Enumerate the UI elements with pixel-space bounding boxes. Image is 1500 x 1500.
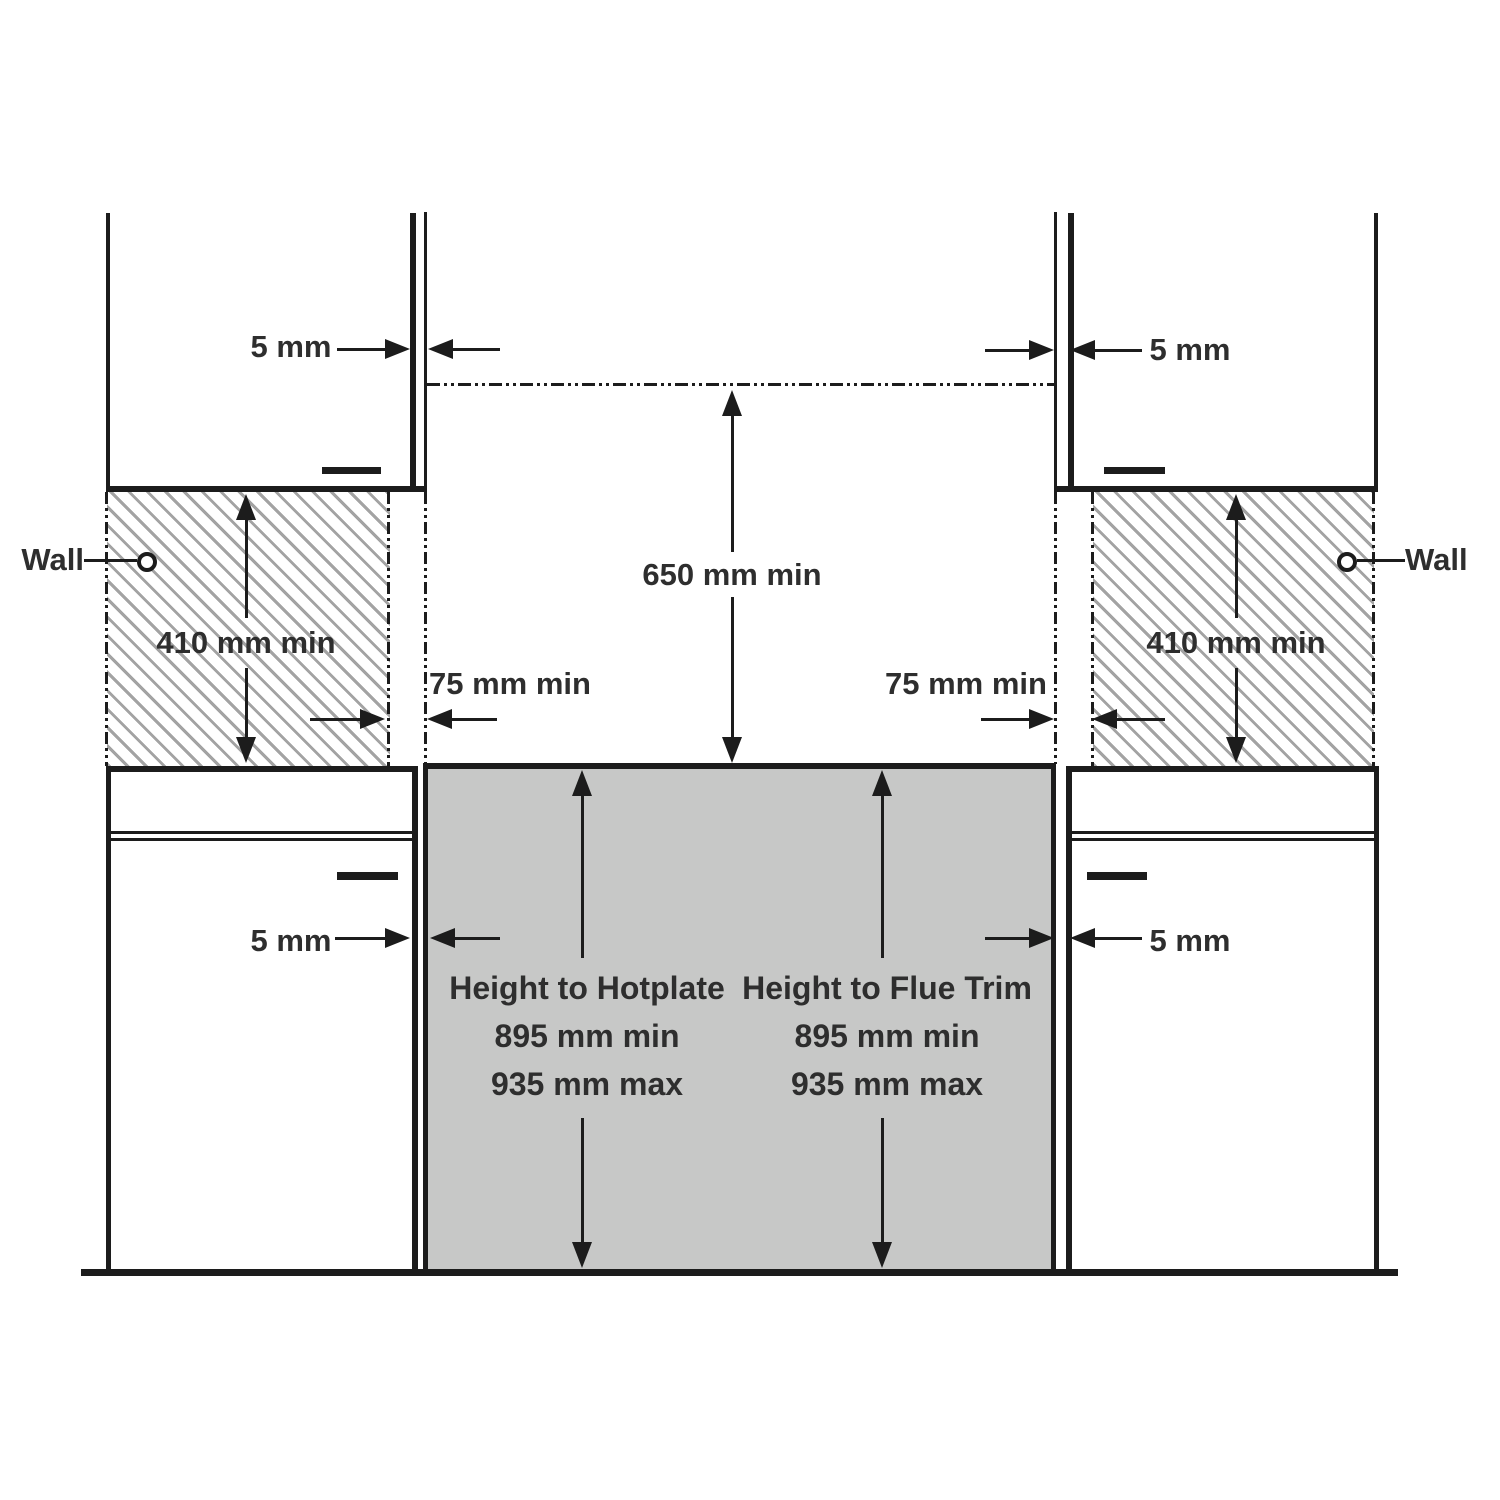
gap-bottom-left-arrow-right <box>385 928 410 948</box>
flue-height-min: 895 mm min <box>742 1012 1032 1060</box>
arrowhead-down-410-right <box>1226 737 1246 763</box>
wall-leader-left <box>84 559 137 562</box>
arrowhead-down-650 <box>722 737 742 763</box>
gap-top-right-tail-right <box>1095 349 1142 352</box>
side-clearance-right-arrow-right <box>1029 709 1054 729</box>
stove-side-plane-dashline-right <box>1054 492 1057 764</box>
arrowhead-down-flue <box>872 1242 892 1268</box>
lower-cabinet-left-drawer-line-1 <box>106 831 418 834</box>
arrowhead-up-410-right <box>1226 494 1246 520</box>
lower-cabinet-left-handle <box>337 872 398 880</box>
stove-side-plane-line-right-upper <box>1054 212 1057 489</box>
upper-cabinet-right-handle <box>1104 467 1165 474</box>
lower-cabinet-right-side-wall-left <box>1066 766 1072 1272</box>
arrowhead-up-hotplate <box>572 770 592 796</box>
gap-top-left-arrow-left <box>428 339 453 359</box>
upper-cabinet-right-side-wall-right <box>1374 213 1378 489</box>
gap-top-right-arrow-right <box>1029 340 1054 360</box>
gap-top-right-arrow-left <box>1070 340 1095 360</box>
installation-clearance-diagram: 650 mm min 410 mm min 410 mm min 75 mm m… <box>0 0 1500 1500</box>
flue-height-max: 935 mm max <box>742 1060 1032 1108</box>
side-clearance-left-arrow-right <box>360 709 385 729</box>
upper-cabinet-left-handle <box>322 467 381 474</box>
dimension-line-410-left-lower <box>245 668 248 737</box>
lower-cabinet-left-side-wall-left <box>106 766 111 1272</box>
lower-cabinet-right-side-wall-right <box>1374 766 1379 1272</box>
cabinet-gap-label-top-left: 5 mm <box>251 329 332 365</box>
gap-top-left-tail-left <box>337 348 385 351</box>
lower-cabinet-right-drawer-line-2 <box>1066 838 1379 841</box>
gap-bottom-right-arrow-left <box>1070 928 1095 948</box>
wall-hatch-left-edge-right <box>387 492 390 766</box>
side-clearance-left-arrow-left <box>427 709 452 729</box>
hotplate-height-max: 935 mm max <box>449 1060 725 1108</box>
dimension-line-hotplate-upper <box>581 796 584 958</box>
hotplate-height-min: 895 mm min <box>449 1012 725 1060</box>
gap-bottom-left-tail-right <box>455 937 500 940</box>
wall-marker-dot-left <box>137 552 157 572</box>
side-clearance-left-tail-left <box>310 718 360 721</box>
gap-bottom-right-tail-left <box>985 937 1029 940</box>
cabinet-gap-label-top-right: 5 mm <box>1150 332 1231 368</box>
wall-hatch-right-edge-right <box>1372 492 1375 766</box>
arrowhead-up-410-left <box>236 494 256 520</box>
wall-leader-right <box>1357 559 1405 562</box>
side-clearance-label-right: 75 mm min <box>885 666 1047 702</box>
wall-min-height-label-left: 410 mm min <box>156 625 335 661</box>
lower-cabinet-right-drawer-line-1 <box>1066 831 1379 834</box>
dimension-line-410-left-upper <box>245 520 248 618</box>
wall-marker-dot-right <box>1337 552 1357 572</box>
wall-label-right: Wall <box>1405 542 1468 578</box>
overhead-clearance-plane-dashline <box>427 383 1054 386</box>
arrowhead-up-650 <box>722 390 742 416</box>
gap-bottom-right-tail-right <box>1095 937 1142 940</box>
dimension-line-650-lower <box>731 597 734 737</box>
overhead-clearance-label: 650 mm min <box>642 557 821 593</box>
wall-hatch-left-edge-left <box>105 492 108 766</box>
dimension-line-flue-upper <box>881 796 884 958</box>
side-clearance-left-tail-right <box>452 718 497 721</box>
dimension-line-flue-lower <box>881 1118 884 1242</box>
hotplate-height-title: Height to Hotplate <box>449 964 725 1012</box>
lower-cabinet-right-countertop <box>1066 766 1379 772</box>
dimension-line-hotplate-lower <box>581 1118 584 1242</box>
cabinet-gap-label-bottom-right: 5 mm <box>1150 923 1231 959</box>
arrowhead-up-flue <box>872 770 892 796</box>
dimension-line-410-right-lower <box>1235 668 1238 737</box>
stove-side-plane-line-left-upper <box>424 212 427 489</box>
wall-label-left: Wall <box>21 542 84 578</box>
lower-cabinet-left-drawer-line-2 <box>106 838 418 841</box>
dimension-line-410-right-upper <box>1235 520 1238 618</box>
arrowhead-down-410-left <box>236 737 256 763</box>
flue-height-text: Height to Flue Trim 895 mm min 935 mm ma… <box>742 964 1032 1108</box>
gap-top-left-tail-right <box>453 348 500 351</box>
wall-min-height-label-right: 410 mm min <box>1146 625 1325 661</box>
gap-bottom-left-tail-left <box>335 937 385 940</box>
gap-bottom-right-arrow-right <box>1029 928 1054 948</box>
side-clearance-right-tail-left <box>981 718 1029 721</box>
gap-bottom-left-arrow-left <box>430 928 455 948</box>
side-clearance-label-left: 75 mm min <box>429 666 591 702</box>
side-clearance-right-tail-right <box>1117 718 1165 721</box>
flue-height-title: Height to Flue Trim <box>742 964 1032 1012</box>
side-clearance-right-arrow-left <box>1092 709 1117 729</box>
dimension-line-650-upper <box>731 416 734 552</box>
gap-top-right-tail-left <box>985 349 1029 352</box>
floor-line <box>81 1269 1398 1276</box>
upper-cabinet-left-side-wall-left <box>106 213 110 489</box>
arrowhead-down-hotplate <box>572 1242 592 1268</box>
cabinet-gap-label-bottom-left: 5 mm <box>251 923 332 959</box>
lower-cabinet-left-side-wall-right <box>412 766 418 1272</box>
upper-cabinet-left-side-wall-right <box>410 213 416 489</box>
gap-top-left-arrow-right <box>385 339 410 359</box>
hotplate-height-text: Height to Hotplate 895 mm min 935 mm max <box>449 964 725 1108</box>
lower-cabinet-left-countertop <box>106 766 418 772</box>
lower-cabinet-right-handle <box>1087 872 1147 880</box>
